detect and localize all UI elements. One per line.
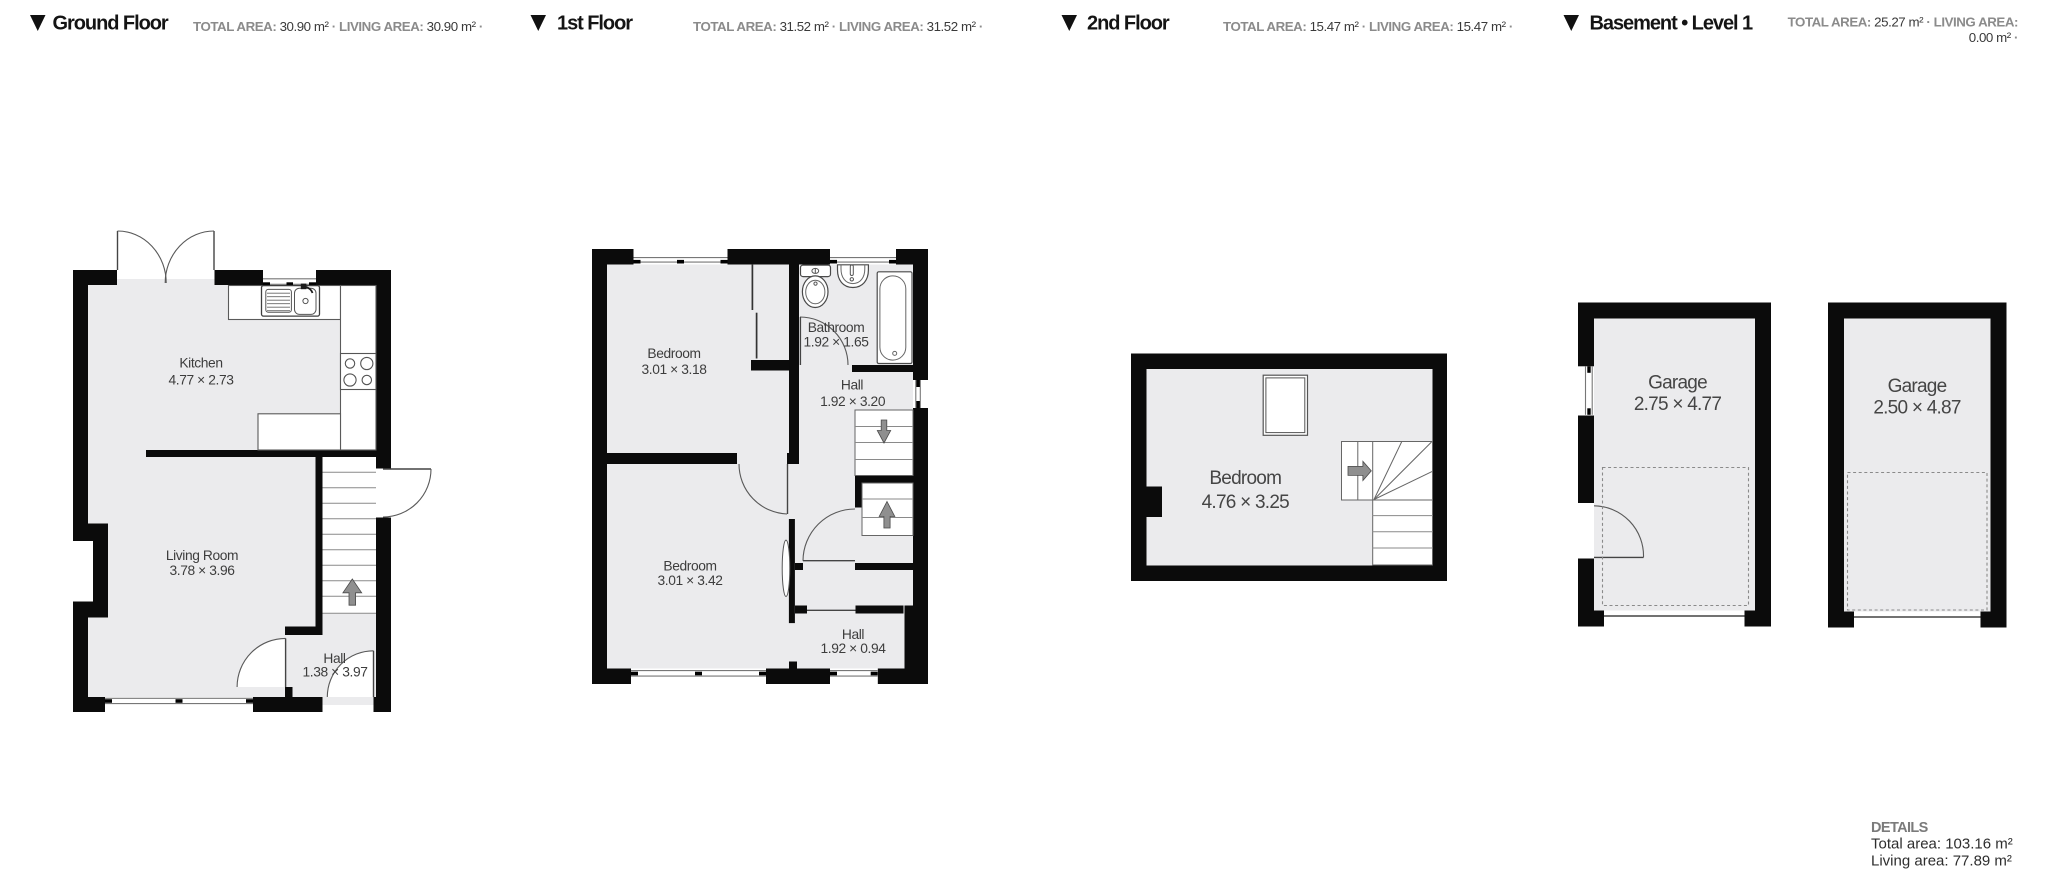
- svg-text:Living Room: Living Room: [166, 548, 238, 563]
- svg-text:2.50 × 4.87: 2.50 × 4.87: [1873, 398, 1961, 419]
- svg-text:0.00 m² ·: 0.00 m² ·: [1969, 30, 2018, 45]
- svg-text:3.01 × 3.42: 3.01 × 3.42: [657, 573, 722, 588]
- svg-text:1st Floor: 1st Floor: [557, 13, 633, 35]
- svg-text:Bedroom: Bedroom: [647, 346, 700, 361]
- svg-text:Bedroom: Bedroom: [1209, 468, 1281, 489]
- svg-text:3.78 × 3.96: 3.78 × 3.96: [169, 563, 235, 578]
- svg-text:Hall: Hall: [841, 378, 864, 393]
- svg-text:Total area: 103.16 m²: Total area: 103.16 m²: [1871, 836, 2013, 853]
- svg-text:Bedroom: Bedroom: [663, 559, 716, 574]
- svg-text:Ground Floor: Ground Floor: [53, 13, 169, 35]
- svg-text:Bathroom: Bathroom: [808, 320, 865, 335]
- svg-text:4.77 × 2.73: 4.77 × 2.73: [168, 372, 234, 387]
- svg-text:Garage: Garage: [1888, 376, 1947, 397]
- svg-text:Basement • Level 1: Basement • Level 1: [1590, 13, 1754, 35]
- svg-text:4.76 × 3.25: 4.76 × 3.25: [1202, 492, 1290, 513]
- svg-text:1.92 × 0.94: 1.92 × 0.94: [820, 641, 886, 656]
- svg-text:Living area: 77.89 m²: Living area: 77.89 m²: [1871, 853, 2012, 870]
- svg-text:1.92 × 1.65: 1.92 × 1.65: [803, 335, 869, 350]
- svg-text:TOTAL AREA: 25.27 m² · LIVING: TOTAL AREA: 25.27 m² · LIVING AREA:: [1788, 15, 2018, 30]
- svg-text:TOTAL AREA: 30.90 m² · LIVING: TOTAL AREA: 30.90 m² · LIVING AREA: 30.9…: [193, 19, 483, 34]
- svg-text:2.75 × 4.77: 2.75 × 4.77: [1634, 394, 1722, 415]
- svg-text:Hall: Hall: [842, 627, 865, 642]
- svg-text:TOTAL AREA: 31.52 m² · LIVING: TOTAL AREA: 31.52 m² · LIVING AREA: 31.5…: [693, 19, 983, 34]
- svg-text:DETAILS: DETAILS: [1871, 820, 1929, 836]
- svg-text:1.38 × 3.97: 1.38 × 3.97: [302, 664, 367, 679]
- svg-text:1.92 × 3.20: 1.92 × 3.20: [820, 394, 886, 409]
- svg-text:Kitchen: Kitchen: [179, 355, 222, 370]
- svg-text:Garage: Garage: [1648, 373, 1707, 394]
- svg-text:TOTAL AREA: 15.47 m² · LIVING: TOTAL AREA: 15.47 m² · LIVING AREA: 15.4…: [1223, 19, 1513, 34]
- svg-text:2nd Floor: 2nd Floor: [1087, 13, 1170, 35]
- svg-text:3.01 × 3.18: 3.01 × 3.18: [641, 362, 707, 377]
